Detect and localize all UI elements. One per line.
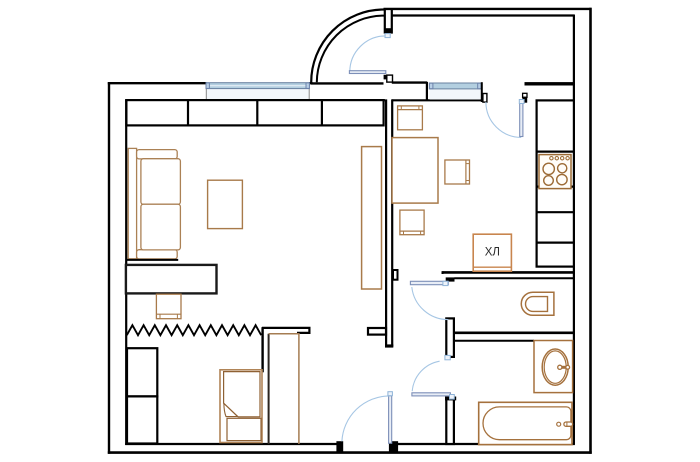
svg-text:ХЛ: ХЛ — [485, 247, 500, 259]
